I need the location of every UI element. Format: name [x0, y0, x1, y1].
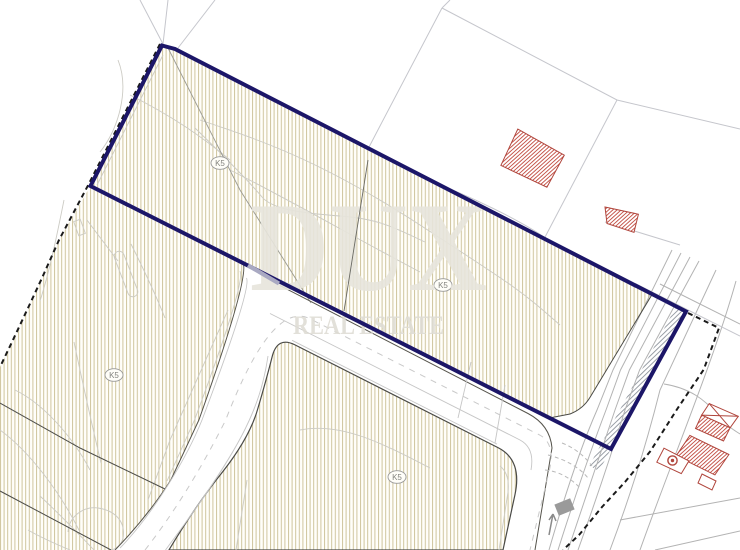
svg-text:K5: K5	[109, 371, 119, 380]
svg-text:K5: K5	[215, 159, 225, 168]
svg-text:DUX: DUX	[250, 178, 487, 318]
svg-text:K5: K5	[392, 473, 402, 482]
